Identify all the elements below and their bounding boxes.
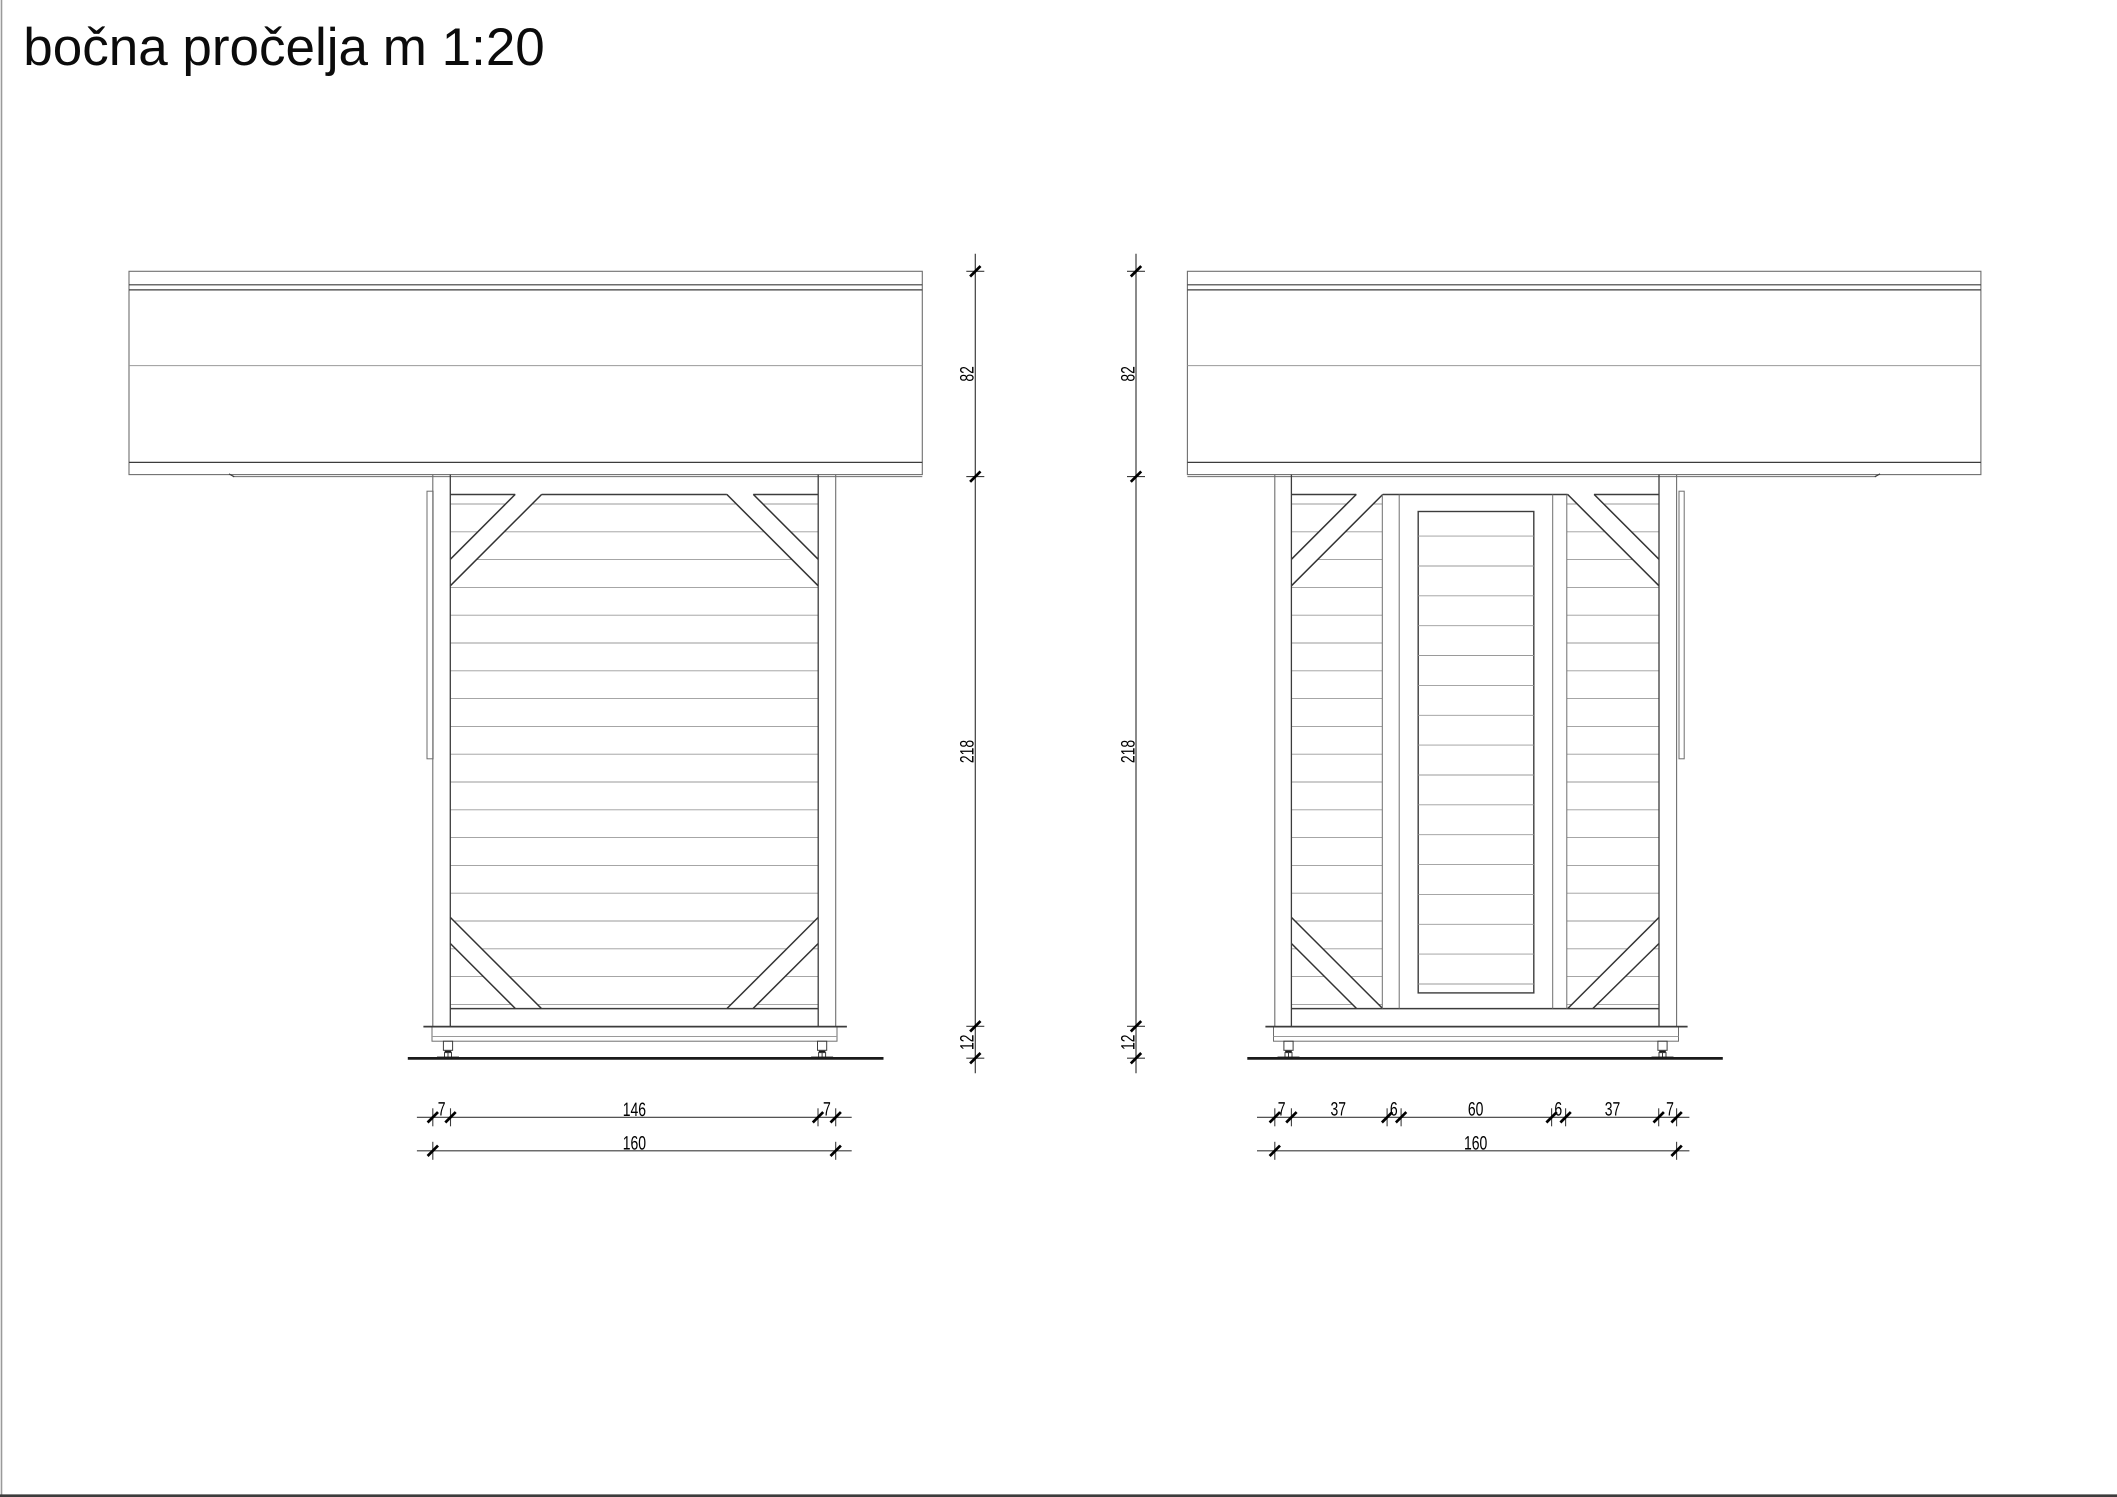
svg-text:7: 7 — [438, 1098, 446, 1120]
svg-text:146: 146 — [623, 1099, 646, 1121]
svg-text:60: 60 — [1468, 1098, 1484, 1120]
svg-text:12: 12 — [957, 1034, 979, 1050]
svg-text:12: 12 — [1117, 1034, 1139, 1050]
svg-text:160: 160 — [1464, 1132, 1487, 1154]
svg-text:7: 7 — [1278, 1098, 1286, 1120]
svg-text:37: 37 — [1331, 1098, 1347, 1120]
svg-text:6: 6 — [1390, 1098, 1398, 1120]
svg-text:82: 82 — [1117, 366, 1139, 382]
svg-text:160: 160 — [623, 1132, 646, 1154]
svg-text:7: 7 — [1666, 1098, 1674, 1120]
svg-text:bočna pročelja m 1:20: bočna pročelja m 1:20 — [23, 18, 545, 77]
svg-text:218: 218 — [1117, 740, 1139, 763]
svg-text:37: 37 — [1605, 1098, 1621, 1120]
svg-text:218: 218 — [957, 740, 979, 763]
svg-text:6: 6 — [1554, 1098, 1562, 1120]
svg-text:82: 82 — [957, 366, 979, 382]
svg-text:7: 7 — [823, 1098, 831, 1120]
